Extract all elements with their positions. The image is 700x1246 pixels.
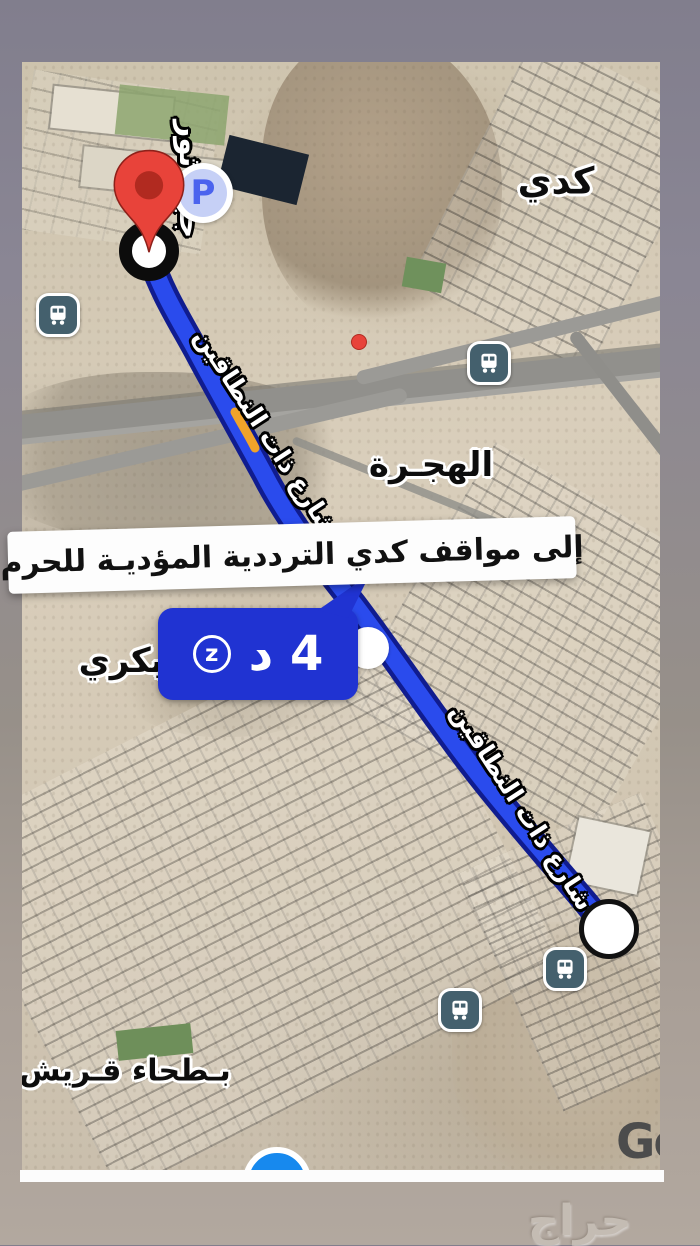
bus-glyph — [45, 302, 71, 328]
incident-dot — [351, 334, 367, 350]
red-map-pin[interactable] — [110, 148, 188, 256]
screenshot-root: { "colors": { "route_blue": "#2a4bed", "… — [0, 0, 700, 1245]
satellite-map[interactable]: شارع ذات النطاقين شارع ذات النطاقين جبل … — [22, 62, 660, 1172]
bus-glyph — [552, 956, 578, 982]
z-circle-icon: z — [193, 635, 231, 673]
district-label-kudai: كدي — [518, 160, 595, 203]
district-label-bakri: بكري — [79, 641, 164, 681]
route-end-circle[interactable] — [579, 899, 639, 959]
bus-glyph — [476, 350, 502, 376]
bus-stop-icon[interactable] — [438, 988, 482, 1032]
duration-label: 4 د — [249, 630, 324, 678]
google-logo: Go — [616, 1114, 660, 1170]
haraj-watermark: حراج — [528, 1196, 631, 1246]
bus-stop-icon[interactable] — [36, 293, 80, 337]
bus-stop-icon[interactable] — [543, 947, 587, 991]
bus-stop-icon[interactable] — [467, 341, 511, 385]
caption-text: إلى مواقف كدي الترددية المؤديـة للحرم — [0, 529, 584, 580]
bus-glyph — [447, 997, 473, 1023]
district-label-batha-quraysh: بـطحاء قـريش — [22, 1054, 231, 1089]
map-bottom-strip — [20, 1170, 664, 1182]
time-badge[interactable]: 4 د z — [158, 608, 358, 700]
district-label-hijrah: الهجـرة — [369, 445, 493, 485]
